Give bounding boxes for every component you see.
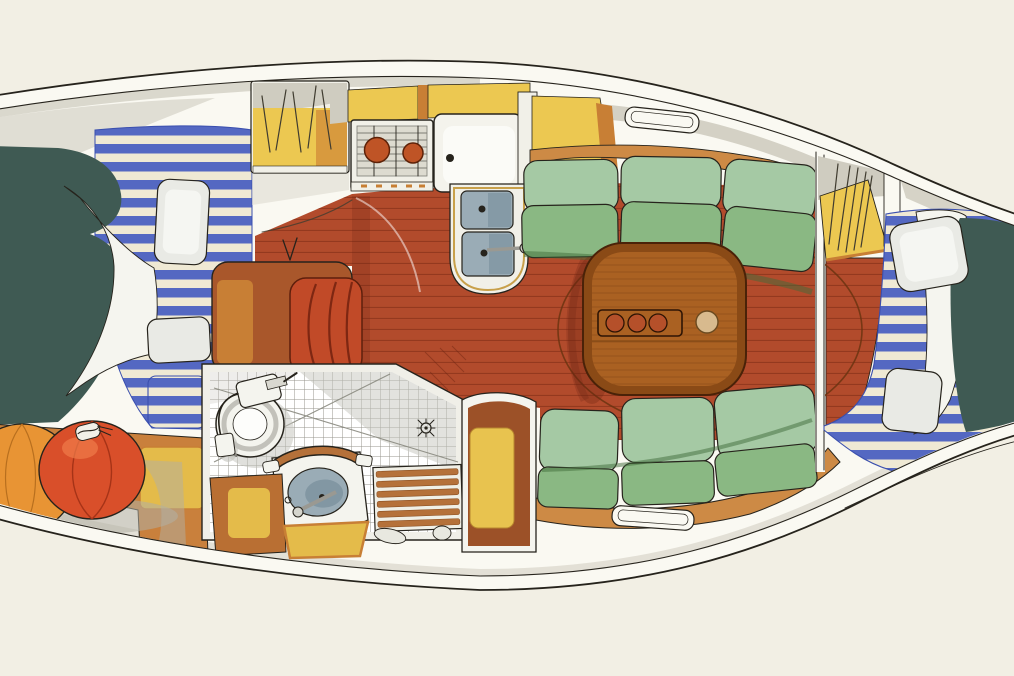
backrest-cushion-4 <box>537 467 618 510</box>
basin-cabinet <box>284 522 368 558</box>
bottle-ring-2 <box>628 314 646 332</box>
aft-pillow-2 <box>881 367 943 435</box>
galley-upper-cabinet-2 <box>428 83 530 118</box>
basin1-drain <box>479 206 486 213</box>
wardrobe <box>462 393 536 552</box>
illustration-canvas: Hand-drawn watercolor plan view of a sai… <box>0 0 1014 676</box>
head-compartment <box>202 364 464 558</box>
basin1-shade <box>488 193 511 227</box>
toilet-pump <box>215 433 236 457</box>
grabrail-pad-right <box>355 454 372 467</box>
galley-corner-shading <box>330 90 348 124</box>
grabrail-pad-left <box>262 460 280 474</box>
counter-drain-dot <box>446 154 454 162</box>
sailboat-floorplan: Hand-drawn watercolor plan view of a sai… <box>0 0 1014 676</box>
seat-red-cushion <box>290 278 362 374</box>
vberth-pillow-1 <box>154 179 210 266</box>
basin2-shade <box>489 234 512 274</box>
shower-drain <box>417 419 435 437</box>
vberth-pillow-2 <box>147 316 211 363</box>
stove-burner-left <box>365 138 390 163</box>
bottle-ring-3 <box>649 314 667 332</box>
bottle-ring-1 <box>606 314 624 332</box>
vberth-striped-cushion <box>148 376 206 428</box>
backrest-cushion-5 <box>621 460 714 505</box>
saloon-table <box>568 243 746 404</box>
stove-burner-right <box>403 143 423 163</box>
forward-seat-block <box>212 262 362 374</box>
aft-pillow-1 <box>888 214 971 293</box>
faucet-base <box>293 507 303 517</box>
seat-cushion-4 <box>539 409 619 474</box>
head-cabinet-door <box>228 488 270 538</box>
cabinet-divider <box>418 85 428 119</box>
galley-stove <box>351 120 433 191</box>
galley-sink-pod <box>450 184 530 294</box>
galley-upper-cabinet-1 <box>348 86 418 122</box>
wardrobe-door <box>470 428 514 528</box>
galley-counter <box>434 114 522 192</box>
teak-grating <box>373 464 463 531</box>
sponge <box>433 526 451 540</box>
locker-sill <box>253 166 347 173</box>
basin2-drain <box>481 250 488 257</box>
table-bowl <box>696 311 718 333</box>
sink-faucet <box>487 248 522 250</box>
seat-side-panel <box>217 280 253 364</box>
